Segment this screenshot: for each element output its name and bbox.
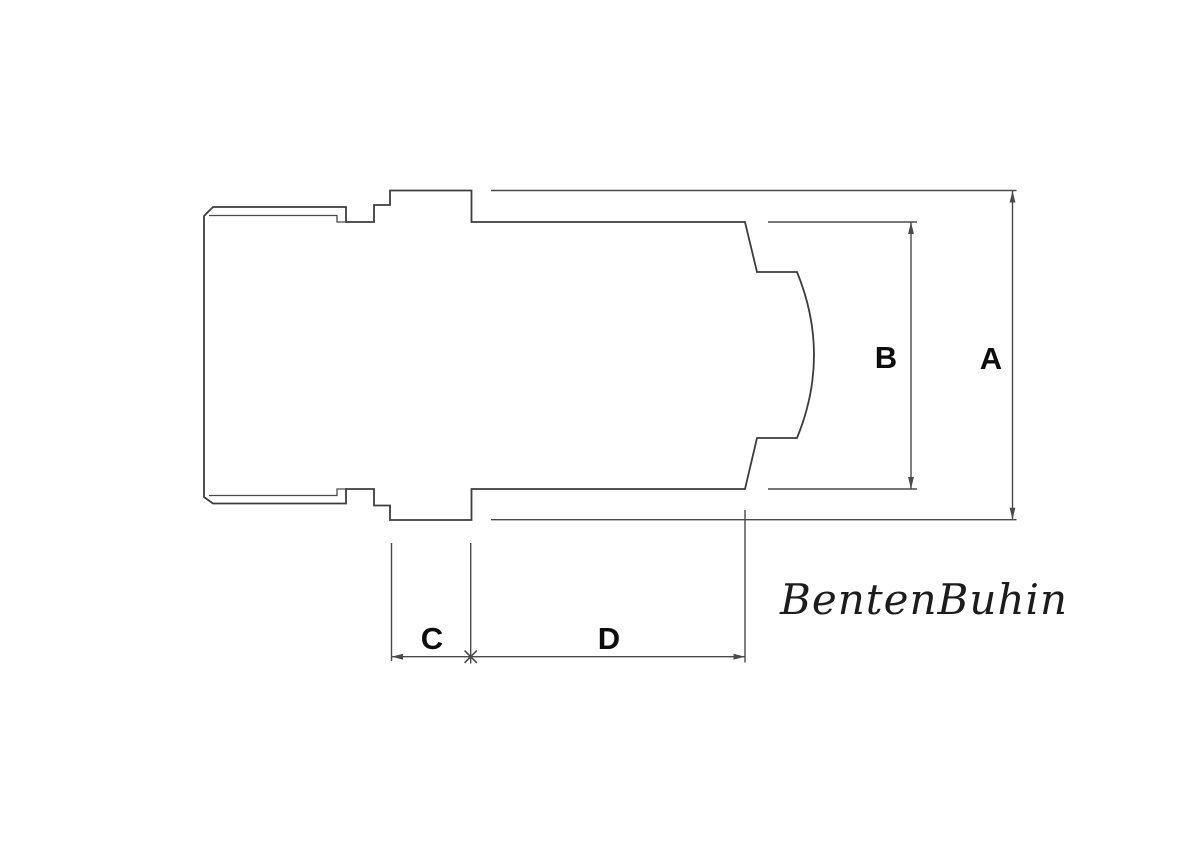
dimension-d: D bbox=[465, 510, 745, 663]
part-outline bbox=[204, 191, 814, 521]
dim-d-arrowhead bbox=[734, 654, 746, 660]
chamfer-edge-lines bbox=[209, 216, 346, 496]
brand-signature: BentenBuhin bbox=[779, 575, 1068, 624]
technical-drawing-canvas: A B C D BentenBuhin bbox=[0, 0, 1200, 848]
dimension-c: C bbox=[392, 543, 471, 664]
dimension-b: B bbox=[768, 222, 917, 489]
dim-d-label: D bbox=[598, 621, 620, 656]
dim-c-arrowhead bbox=[392, 654, 404, 660]
drawing-page: A B C D BentenBuhin bbox=[0, 0, 1200, 848]
dim-a-label: A bbox=[980, 341, 1002, 376]
dimension-a: A bbox=[491, 191, 1017, 520]
dim-c-label: C bbox=[421, 621, 443, 656]
dim-a-extension-lines bbox=[491, 191, 1017, 520]
dim-b-label: B bbox=[875, 340, 897, 375]
